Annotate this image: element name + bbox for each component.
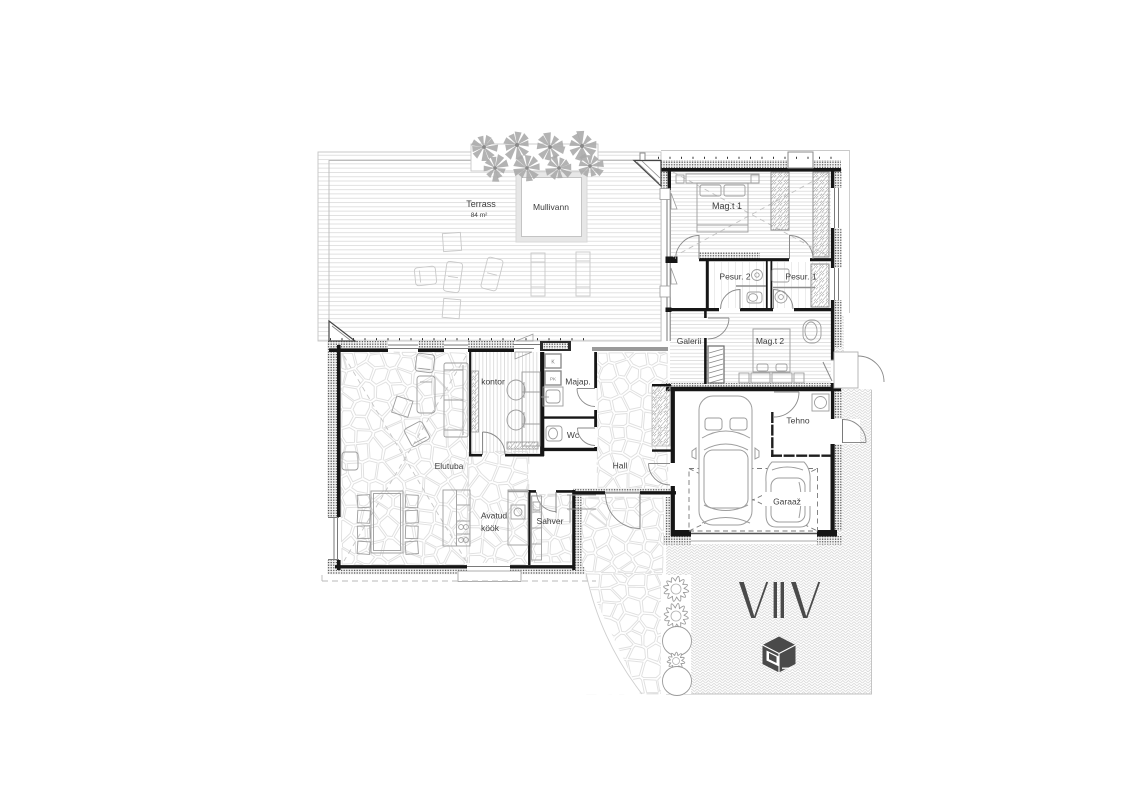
svg-text:Galerii: Galerii: [677, 336, 702, 346]
svg-text:Mag.t 1: Mag.t 1: [712, 201, 742, 211]
svg-text:Sahver: Sahver: [537, 516, 564, 526]
svg-text:Mullivann: Mullivann: [533, 202, 569, 212]
svg-text:Hall: Hall: [613, 461, 628, 471]
svg-text:Mag.t 2: Mag.t 2: [756, 336, 785, 346]
svg-text:köök: köök: [481, 523, 500, 533]
svg-text:Tehno: Tehno: [786, 416, 809, 426]
svg-text:Pesur. 1: Pesur. 1: [785, 272, 816, 282]
svg-text:Elutuba: Elutuba: [435, 461, 464, 471]
svg-text:Garaaž: Garaaž: [773, 497, 801, 507]
svg-text:Terrass: Terrass: [466, 199, 496, 209]
svg-text:Pesur. 2: Pesur. 2: [719, 272, 750, 282]
svg-text:PK: PK: [550, 377, 556, 382]
svg-text:Wc: Wc: [567, 430, 580, 440]
svg-text:84 m²: 84 m²: [471, 212, 488, 219]
svg-text:Majap.: Majap.: [565, 377, 591, 387]
svg-text:Avatud: Avatud: [481, 511, 508, 521]
svg-text:kontor: kontor: [481, 377, 505, 387]
